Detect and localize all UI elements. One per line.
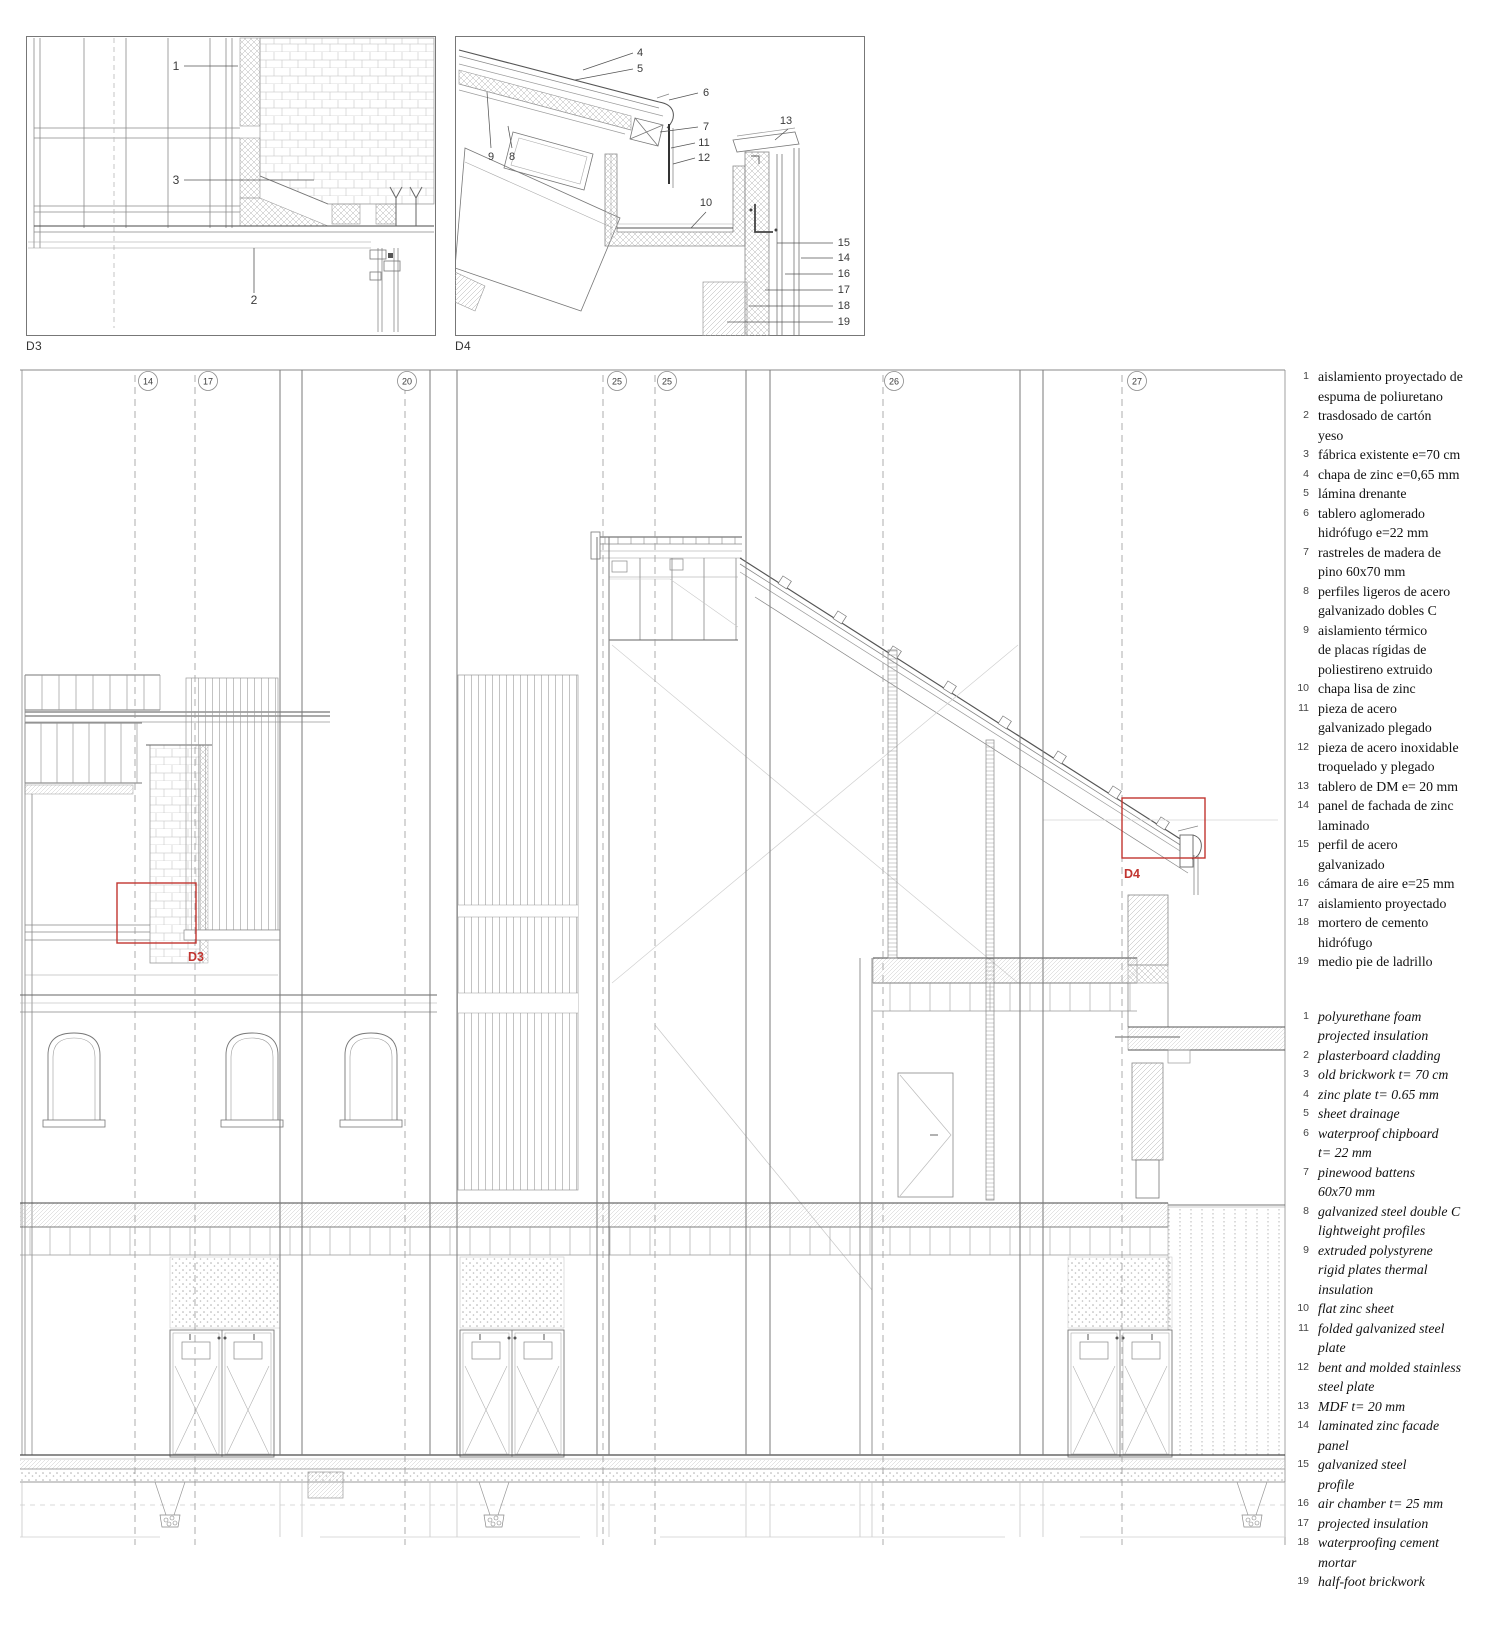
legend-item: 12 bent and molded stainless steel plate bbox=[1292, 1358, 1510, 1397]
legend-item: 11 pieza de acero galvanizado plegado bbox=[1292, 699, 1510, 738]
callout-17: 17 bbox=[838, 284, 850, 296]
legend-item-number: 16 bbox=[1292, 1494, 1309, 1514]
detail-d3-title: D3 bbox=[26, 339, 42, 353]
legend-item-number: 12 bbox=[1292, 738, 1309, 758]
legend-item-number: 10 bbox=[1292, 679, 1309, 699]
legend-item-text: extruded polystyrene rigid plates therma… bbox=[1318, 1241, 1433, 1300]
callout-15: 15 bbox=[838, 237, 850, 249]
double-door-right bbox=[1068, 1330, 1172, 1457]
legend-item-text: air chamber t= 25 mm bbox=[1318, 1494, 1443, 1514]
legend-spanish: 1 aislamiento proyectado de espuma de po… bbox=[1292, 367, 1510, 972]
d4-callout-numbers: 4 5 6 7 11 12 13 9 8 10 15 14 16 17 18 1… bbox=[488, 47, 850, 328]
legend-item-number: 6 bbox=[1292, 1124, 1309, 1144]
door-headers bbox=[170, 1257, 1172, 1328]
legend-item: 17 aislamiento proyectado bbox=[1292, 894, 1510, 914]
callout-11: 11 bbox=[698, 137, 709, 149]
legend-item-text: plasterboard cladding bbox=[1318, 1046, 1441, 1066]
cut-walls bbox=[280, 370, 1043, 1455]
legend-item-text: old brickwork t= 70 cm bbox=[1318, 1065, 1448, 1085]
callout-16: 16 bbox=[838, 268, 850, 280]
d4-marker-label: D4 bbox=[1124, 867, 1140, 881]
legend-item: 1 aislamiento proyectado de espuma de po… bbox=[1292, 367, 1510, 406]
d3-floor-slab bbox=[28, 226, 434, 248]
legend-item-number: 3 bbox=[1292, 445, 1309, 465]
legend-item: 14 laminated zinc facade panel bbox=[1292, 1416, 1510, 1455]
legend-item-number: 12 bbox=[1292, 1358, 1309, 1378]
legend-item: 17 projected insulation bbox=[1292, 1514, 1510, 1534]
legend-item-number: 5 bbox=[1292, 484, 1309, 504]
grid-bubble-17: 17 bbox=[203, 377, 213, 387]
d3-marker-label: D3 bbox=[188, 950, 204, 964]
legend-item: 4 zinc plate t= 0.65 mm bbox=[1292, 1085, 1510, 1105]
legend-item-number: 5 bbox=[1292, 1104, 1309, 1124]
grid-bubbles: 14 17 20 25 25 26 27 bbox=[139, 372, 1147, 391]
legend-item: 9 extruded polystyrene rigid plates ther… bbox=[1292, 1241, 1510, 1300]
legend-item-number: 4 bbox=[1292, 1085, 1309, 1105]
callout-10: 10 bbox=[700, 197, 712, 209]
legend-item-text: rastreles de madera de pino 60x70 mm bbox=[1318, 543, 1441, 582]
double-door-middle bbox=[460, 1330, 564, 1457]
legend-item-text: projected insulation bbox=[1318, 1514, 1428, 1534]
d3-brickwork bbox=[260, 38, 434, 204]
legend-item: 11 folded galvanized steel plate bbox=[1292, 1319, 1510, 1358]
floor-slab bbox=[20, 1203, 1168, 1255]
legend-item-number: 4 bbox=[1292, 465, 1309, 485]
callout-12: 12 bbox=[698, 152, 710, 164]
legend-item-text: chapa lisa de zinc bbox=[1318, 679, 1416, 699]
legend-item-number: 8 bbox=[1292, 1202, 1309, 1222]
legend-item-text: mortero de cemento hidrófugo bbox=[1318, 913, 1428, 952]
legend-item-number: 7 bbox=[1292, 543, 1309, 563]
legend-item: 7 rastreles de madera de pino 60x70 mm bbox=[1292, 543, 1510, 582]
legend-item: 12 pieza de acero inoxidable troquelado … bbox=[1292, 738, 1510, 777]
legend-item-number: 11 bbox=[1292, 1319, 1309, 1339]
legend-item-number: 19 bbox=[1292, 1572, 1309, 1592]
legend-item: 2 plasterboard cladding bbox=[1292, 1046, 1510, 1066]
detail-d3: 1 3 2 bbox=[26, 36, 436, 336]
d4-skylight-frame bbox=[504, 132, 593, 190]
legend-item-text: aislamiento proyectado bbox=[1318, 894, 1446, 914]
legend-item: 18 mortero de cemento hidrófugo bbox=[1292, 913, 1510, 952]
callout-19: 19 bbox=[838, 316, 850, 328]
legend-item: 3 old brickwork t= 70 cm bbox=[1292, 1065, 1510, 1085]
legend-item-number: 1 bbox=[1292, 367, 1309, 387]
hatched-column-1 bbox=[888, 650, 897, 958]
legend-item-text: polyurethane foam projected insulation bbox=[1318, 1007, 1428, 1046]
legend-item-number: 15 bbox=[1292, 835, 1309, 855]
legend-item: 10 flat zinc sheet bbox=[1292, 1299, 1510, 1319]
ground-foundations bbox=[20, 1455, 1285, 1537]
legend-item: 8 galvanized steel double C lightweight … bbox=[1292, 1202, 1510, 1241]
legend-item: 19 medio pie de ladrillo bbox=[1292, 952, 1510, 972]
legend-item-text: aislamiento proyectado de espuma de poli… bbox=[1318, 367, 1463, 406]
legend-item-number: 9 bbox=[1292, 1241, 1309, 1261]
grid-bubble-27: 27 bbox=[1132, 377, 1142, 387]
d3-window-frame bbox=[370, 248, 400, 332]
legend-item-text: aislamiento térmico de placas rígidas de… bbox=[1318, 621, 1433, 680]
legend-item-text: flat zinc sheet bbox=[1318, 1299, 1394, 1319]
legend-item: 5 lámina drenante bbox=[1292, 484, 1510, 504]
grid-bubble-14: 14 bbox=[143, 377, 153, 387]
legend-item-number: 10 bbox=[1292, 1299, 1309, 1319]
legend-item-text: zinc plate t= 0.65 mm bbox=[1318, 1085, 1439, 1105]
callout-6: 6 bbox=[703, 87, 709, 99]
legend-item: 13 MDF t= 20 mm bbox=[1292, 1397, 1510, 1417]
legend-item: 7 pinewood battens 60x70 mm bbox=[1292, 1163, 1510, 1202]
legend-item-number: 6 bbox=[1292, 504, 1309, 524]
legend-item-text: pieza de acero inoxidable troquelado y p… bbox=[1318, 738, 1459, 777]
legend-item: 14 panel de fachada de zinc laminado bbox=[1292, 796, 1510, 835]
legend-item-number: 18 bbox=[1292, 1533, 1309, 1553]
legend-item-number: 15 bbox=[1292, 1455, 1309, 1475]
callout-5: 5 bbox=[637, 63, 643, 75]
legend-item: 6 tablero aglomerado hidrófugo e=22 mm bbox=[1292, 504, 1510, 543]
callout-4: 4 bbox=[637, 47, 643, 59]
detail-d3-drawing: 1 3 2 bbox=[26, 36, 436, 336]
legend-item-number: 7 bbox=[1292, 1163, 1309, 1183]
legend-item-text: pieza de acero galvanizado plegado bbox=[1318, 699, 1432, 738]
legend-item-text: waterproof chipboard t= 22 mm bbox=[1318, 1124, 1438, 1163]
mezzanine-slab bbox=[873, 958, 1137, 1011]
legend-item-text: medio pie de ladrillo bbox=[1318, 952, 1433, 972]
legend-item-number: 3 bbox=[1292, 1065, 1309, 1085]
legend-item: 8 perfiles ligeros de acero galvanizado … bbox=[1292, 582, 1510, 621]
roof-battens bbox=[778, 576, 1169, 830]
legend-item: 9 aislamiento térmico de placas rígidas … bbox=[1292, 621, 1510, 680]
legend-item-number: 14 bbox=[1292, 796, 1309, 816]
legend-item-text: bent and molded stainless steel plate bbox=[1318, 1358, 1461, 1397]
callout-18: 18 bbox=[838, 300, 850, 312]
callout-14: 14 bbox=[838, 252, 850, 264]
legend-english: 1 polyurethane foam projected insulation… bbox=[1292, 1007, 1510, 1592]
detail-d4-drawing: 4 5 6 7 11 12 13 9 8 10 15 14 16 17 18 1… bbox=[455, 36, 865, 336]
legend-item: 5 sheet drainage bbox=[1292, 1104, 1510, 1124]
interior-door bbox=[898, 1073, 953, 1197]
legend-item-number: 17 bbox=[1292, 1514, 1309, 1534]
detail-d4-title: D4 bbox=[455, 339, 471, 353]
legend-item-text: galvanized steel profile bbox=[1318, 1455, 1407, 1494]
legend-item-number: 13 bbox=[1292, 1397, 1309, 1417]
legend-item-number: 9 bbox=[1292, 621, 1309, 641]
legend-item-text: folded galvanized steel plate bbox=[1318, 1319, 1444, 1358]
legend-item-text: pinewood battens 60x70 mm bbox=[1318, 1163, 1415, 1202]
callout-13: 13 bbox=[780, 115, 792, 127]
callout-7: 7 bbox=[703, 121, 709, 133]
callout-9: 9 bbox=[488, 151, 494, 163]
legend-item: 6 waterproof chipboard t= 22 mm bbox=[1292, 1124, 1510, 1163]
legend-item: 15 perfil de acero galvanizado bbox=[1292, 835, 1510, 874]
callout-3: 3 bbox=[173, 173, 180, 187]
legend-item: 4 chapa de zinc e=0,65 mm bbox=[1292, 465, 1510, 485]
d4-eave-blocking bbox=[630, 118, 663, 146]
legend-item: 16 cámara de aire e=25 mm bbox=[1292, 874, 1510, 894]
legend-item-text: lámina drenante bbox=[1318, 484, 1407, 504]
double-door-left bbox=[170, 1330, 274, 1457]
legend-item: 19 half-foot brickwork bbox=[1292, 1572, 1510, 1592]
legend-item-text: perfil de acero galvanizado bbox=[1318, 835, 1398, 874]
callout-2: 2 bbox=[251, 293, 258, 307]
callout-1: 1 bbox=[173, 59, 180, 73]
grid-bubble-20: 20 bbox=[402, 377, 412, 387]
detail-d4: 4 5 6 7 11 12 13 9 8 10 15 14 16 17 18 1… bbox=[455, 36, 865, 336]
d4-roof-insulation bbox=[459, 70, 631, 130]
legend-item-text: galvanized steel double C lightweight pr… bbox=[1318, 1202, 1460, 1241]
legend-item-text: MDF t= 20 mm bbox=[1318, 1397, 1405, 1417]
legend-item-text: sheet drainage bbox=[1318, 1104, 1400, 1124]
d4-gutter bbox=[605, 154, 745, 246]
hatched-column-2 bbox=[986, 740, 994, 1200]
d4-border bbox=[456, 37, 865, 336]
legend-item-text: laminated zinc facade panel bbox=[1318, 1416, 1439, 1455]
legend-item-text: half-foot brickwork bbox=[1318, 1572, 1425, 1592]
legend-item: 13 tablero de DM e= 20 mm bbox=[1292, 777, 1510, 797]
callout-8: 8 bbox=[509, 151, 515, 163]
legend-item-text: cámara de aire e=25 mm bbox=[1318, 874, 1454, 894]
legend-item: 15 galvanized steel profile bbox=[1292, 1455, 1510, 1494]
main-section: 14 17 20 25 25 26 27 D3 D4 bbox=[20, 365, 1290, 1559]
grid-bubble-25a: 25 bbox=[612, 377, 622, 387]
legend-item: 3 fábrica existente e=70 cm bbox=[1292, 445, 1510, 465]
legend-item-number: 19 bbox=[1292, 952, 1309, 972]
legend-item-text: fábrica existente e=70 cm bbox=[1318, 445, 1460, 465]
legend-item: 2 trasdosado de cartón yeso bbox=[1292, 406, 1510, 445]
legend-item: 18 waterproofing cement mortar bbox=[1292, 1533, 1510, 1572]
legend-item-number: 2 bbox=[1292, 406, 1309, 426]
legend-item: 16 air chamber t= 25 mm bbox=[1292, 1494, 1510, 1514]
legend-item-number: 17 bbox=[1292, 894, 1309, 914]
legend-item: 10 chapa lisa de zinc bbox=[1292, 679, 1510, 699]
legend-item-number: 13 bbox=[1292, 777, 1309, 797]
legend-item-text: waterproofing cement mortar bbox=[1318, 1533, 1439, 1572]
legend-item-number: 8 bbox=[1292, 582, 1309, 602]
legend-item-text: panel de fachada de zinc laminado bbox=[1318, 796, 1454, 835]
grid-bubble-26: 26 bbox=[889, 377, 899, 387]
d4-steel-strap bbox=[669, 124, 673, 188]
legend-item: 1 polyurethane foam projected insulation bbox=[1292, 1007, 1510, 1046]
legend-item-text: tablero de DM e= 20 mm bbox=[1318, 777, 1458, 797]
legend-item-number: 16 bbox=[1292, 874, 1309, 894]
legend-item-number: 18 bbox=[1292, 913, 1309, 933]
drawing-sheet: { "colors": { "red": "#c13530", "line": … bbox=[0, 0, 1512, 1559]
grid-bubble-25b: 25 bbox=[662, 377, 672, 387]
legend-item-number: 2 bbox=[1292, 1046, 1309, 1066]
legend-item-text: tablero aglomerado hidrófugo e=22 mm bbox=[1318, 504, 1428, 543]
legend-item-number: 14 bbox=[1292, 1416, 1309, 1436]
legend-item-text: trasdosado de cartón yeso bbox=[1318, 406, 1431, 445]
legend-item-text: chapa de zinc e=0,65 mm bbox=[1318, 465, 1459, 485]
main-section-drawing: 14 17 20 25 25 26 27 D3 D4 bbox=[20, 365, 1290, 1559]
legend-item-number: 11 bbox=[1292, 699, 1309, 719]
bay2-zinc-siding bbox=[458, 675, 578, 1190]
d3-wall-studs bbox=[34, 38, 240, 248]
legend: 1 aislamiento proyectado de espuma de po… bbox=[1292, 367, 1510, 1627]
legend-item-text: perfiles ligeros de acero galvanizado do… bbox=[1318, 582, 1450, 621]
legend-item-number: 1 bbox=[1292, 1007, 1309, 1027]
